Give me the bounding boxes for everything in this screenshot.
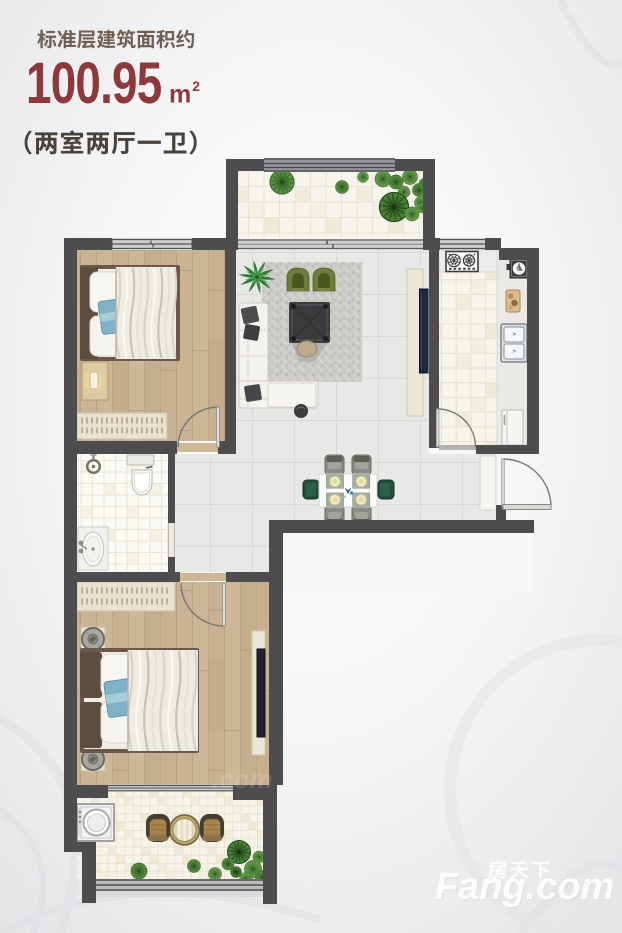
svg-text:Fang: Fang xyxy=(508,584,570,614)
svg-text:.com: .com xyxy=(212,764,273,794)
